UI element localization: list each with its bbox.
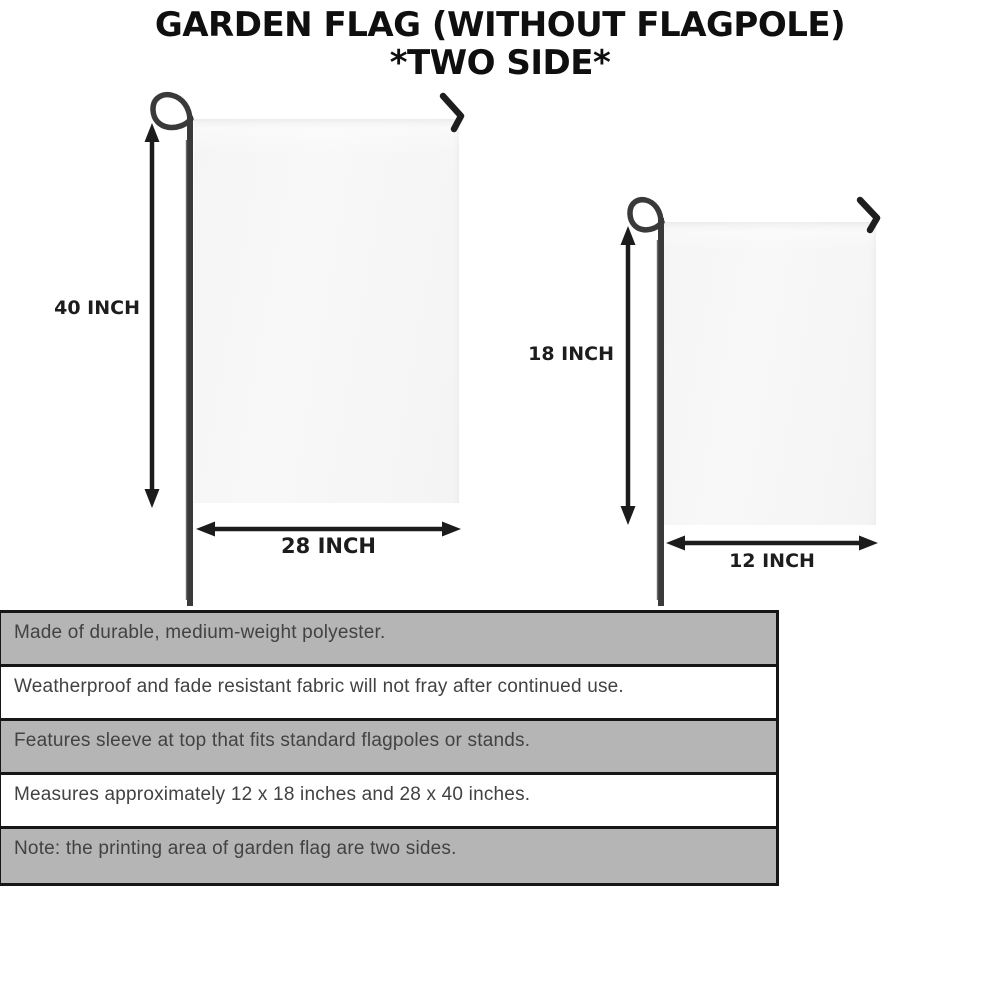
width-arrow-small bbox=[666, 536, 878, 551]
spec-row: Features sleeve at top that fits standar… bbox=[1, 721, 776, 775]
flag-small-preview bbox=[664, 222, 876, 525]
spec-row: Made of durable, medium-weight polyester… bbox=[1, 613, 776, 667]
title-block: GARDEN FLAG (WITHOUT FLAGPOLE) *TWO SIDE… bbox=[0, 6, 1000, 82]
spec-row: Measures approximately 12 x 18 inches an… bbox=[1, 775, 776, 829]
garden-flag-infographic: GARDEN FLAG (WITHOUT FLAGPOLE) *TWO SIDE… bbox=[0, 0, 1000, 1000]
stand-loop-small bbox=[630, 200, 662, 230]
flagpole-stand-small bbox=[630, 200, 662, 606]
height-label-large: 40 INCH bbox=[40, 297, 140, 319]
spec-row-text: Features sleeve at top that fits standar… bbox=[14, 730, 530, 751]
page-title: GARDEN FLAG (WITHOUT FLAGPOLE) bbox=[0, 6, 1000, 44]
spec-row-text: Made of durable, medium-weight polyester… bbox=[14, 622, 386, 643]
spec-row: Weatherproof and fade resistant fabric w… bbox=[1, 667, 776, 721]
spec-row: Note: the printing area of garden flag a… bbox=[1, 829, 776, 883]
stand-loop-large bbox=[153, 95, 191, 128]
width-label-large: 28 INCH bbox=[196, 534, 461, 558]
flag-large-preview bbox=[194, 119, 459, 503]
height-label-small: 18 INCH bbox=[514, 343, 614, 365]
page-subtitle: *TWO SIDE* bbox=[0, 44, 1000, 82]
spec-row-text: Note: the printing area of garden flag a… bbox=[14, 838, 457, 859]
spec-row-text: Weatherproof and fade resistant fabric w… bbox=[14, 676, 624, 697]
spec-table: Made of durable, medium-weight polyester… bbox=[0, 610, 779, 886]
width-label-small: 12 INCH bbox=[666, 550, 878, 572]
spec-row-text: Measures approximately 12 x 18 inches an… bbox=[14, 784, 530, 805]
flagpole-stand-large bbox=[153, 95, 191, 606]
height-arrow-small bbox=[621, 226, 636, 525]
height-arrow-large bbox=[145, 123, 160, 508]
